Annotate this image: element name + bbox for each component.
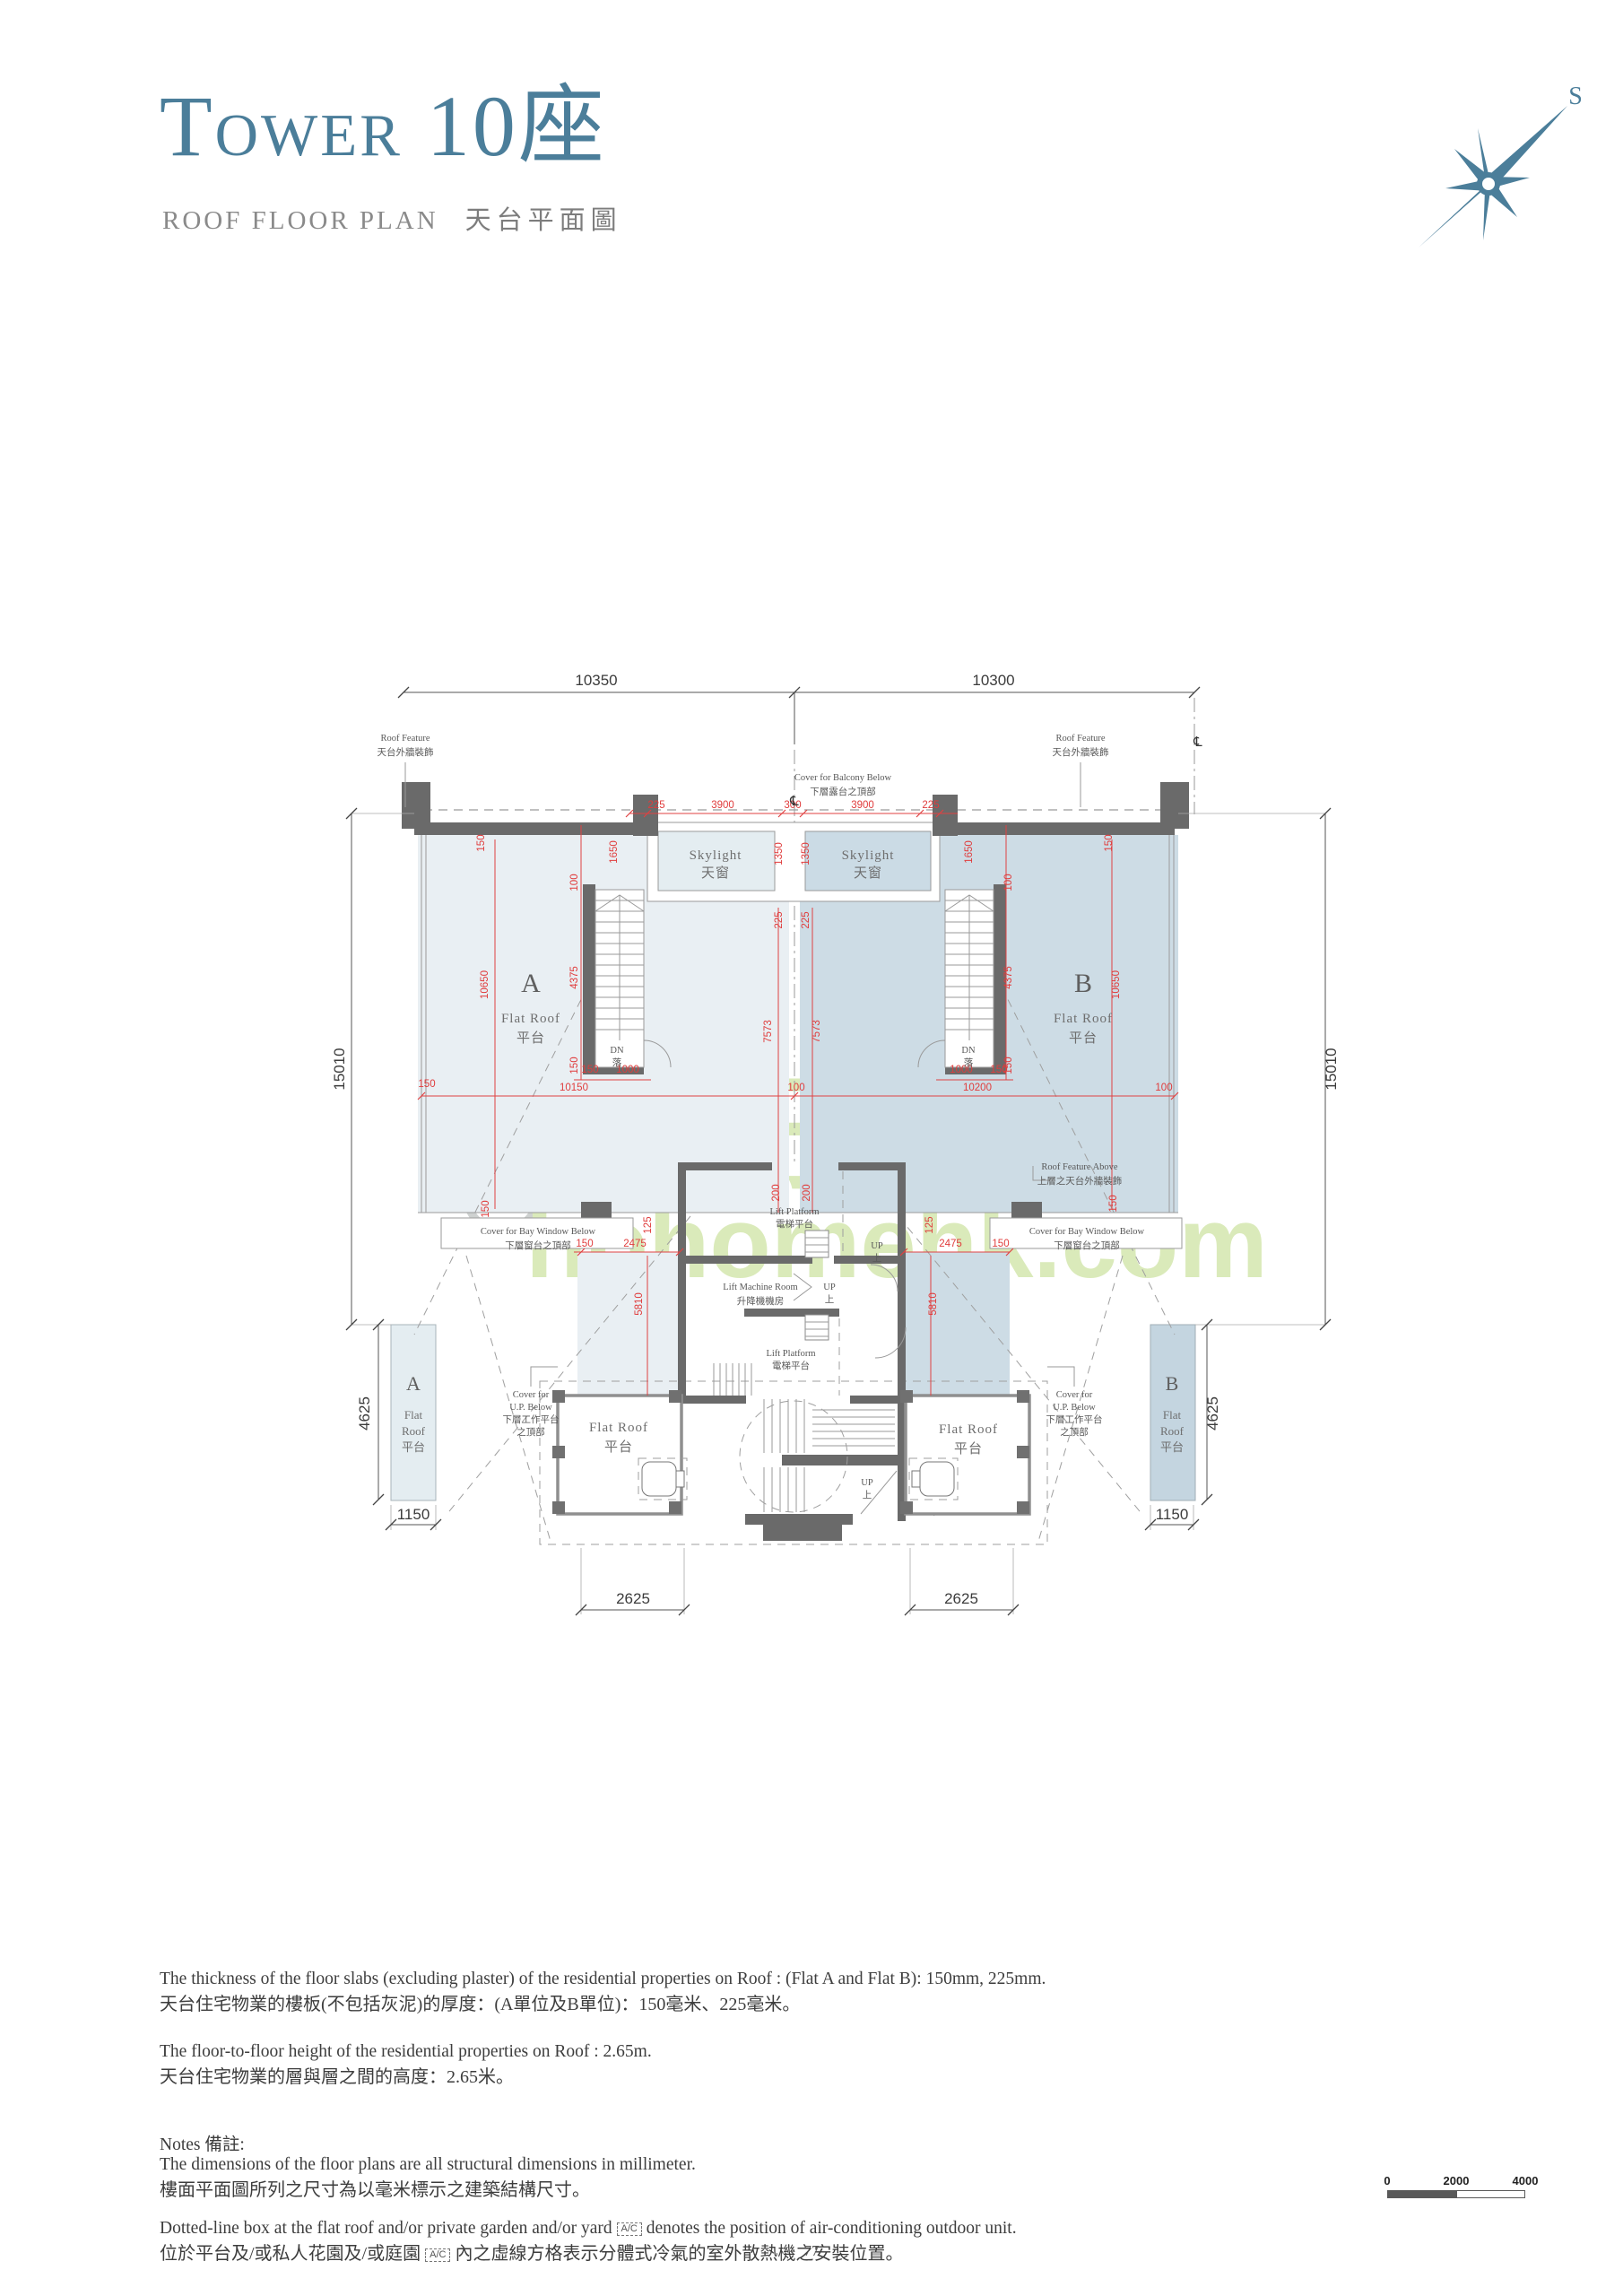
plan-label: 15010 — [331, 1048, 348, 1090]
plan-label: 之頂部 — [516, 1426, 545, 1438]
plan-label: 150 — [476, 834, 487, 851]
plan-label: Flat Roof — [939, 1422, 998, 1437]
plan-label: 天窗 — [701, 865, 730, 881]
plan-label: 150 — [576, 1239, 593, 1249]
plan-label: 100 — [787, 1083, 804, 1093]
plan-label: 2475 — [623, 1239, 647, 1249]
plan-label: Cover for Bay Window Below — [1029, 1227, 1145, 1237]
plan-label: 3900 — [711, 800, 734, 811]
plan-label: Roof Feature Above — [1041, 1162, 1117, 1172]
plan-label: 平台 — [1069, 1031, 1098, 1046]
plan-label: 2625 — [944, 1590, 978, 1607]
plan-label: 1350 — [774, 842, 785, 865]
plan-label: 4375 — [569, 966, 580, 989]
plan-label: 上層之天台外牆裝飾 — [1037, 1175, 1123, 1187]
plan-label: Flat Roof — [1054, 1012, 1113, 1026]
plan-label: 150 — [1108, 1195, 1119, 1212]
plan-label: 上 — [863, 1490, 872, 1500]
plan-label: 5810 — [928, 1292, 939, 1316]
plan-label: 下層工作平台 — [503, 1413, 560, 1425]
plan-label: 下層窗台之頂部 — [505, 1239, 571, 1251]
footer-notes: The thickness of the floor slabs (exclud… — [160, 1970, 1523, 2265]
plan-label: 10350 — [575, 672, 617, 689]
plan-label: Lift Platform — [766, 1349, 815, 1359]
plan-label: 落 — [612, 1057, 622, 1068]
plan-label: 1150 — [1156, 1506, 1189, 1523]
plan-label: Cover for — [1056, 1390, 1093, 1400]
plan-label: 100 — [1155, 1083, 1172, 1093]
plan-label: Roof — [1160, 1424, 1185, 1438]
plan-label: B — [1074, 969, 1092, 998]
plan-label: 平台 — [402, 1440, 425, 1454]
plan-label: 5810 — [634, 1292, 645, 1316]
plan-label: Flat — [1163, 1408, 1182, 1422]
plan-label: 2475 — [939, 1239, 962, 1249]
plan-label: Lift Platform — [769, 1207, 819, 1217]
plan-label: 4625 — [356, 1396, 373, 1431]
plan-label: ℄ — [1193, 734, 1202, 750]
plan-label: 1350 — [801, 842, 811, 865]
plan-label: 225 — [647, 800, 664, 811]
plan-label: Skylight — [690, 848, 742, 863]
plan-label: 天台外牆裝飾 — [378, 746, 434, 758]
note1-zh: 樓面平面圖所列之尺寸為以毫米標示之建築結構尺寸。 — [160, 2175, 1523, 2201]
plan-label: 電梯平台 — [776, 1218, 813, 1230]
plan-label: 200 — [771, 1184, 782, 1201]
plan-label: 下層露台之頂部 — [810, 786, 876, 797]
plan-label: 下層工作平台 — [1046, 1413, 1103, 1425]
plan-label: Skylight — [842, 848, 895, 863]
plan-label: 1650 — [964, 840, 975, 864]
ac-box-icon: A/C — [617, 2222, 642, 2236]
plan-label: UP — [861, 1478, 873, 1488]
plan-label: ℄ — [789, 793, 799, 809]
plan-label: B — [1166, 1372, 1179, 1395]
plan-label: UP — [871, 1241, 883, 1251]
plan-label: Cover for Balcony Below — [794, 773, 892, 783]
plan-label: Flat Roof — [501, 1012, 560, 1026]
plan-label: 150 — [418, 1079, 435, 1090]
plan-label: 下層窗台之頂部 — [1054, 1239, 1120, 1251]
plan-label: A — [406, 1372, 421, 1395]
plan-label: 10650 — [1111, 970, 1122, 999]
plan-label: 7573 — [811, 1020, 822, 1043]
plan-label: U.P. Below — [509, 1403, 552, 1413]
plan-label: Flat — [404, 1408, 423, 1422]
plan-label: Roof — [402, 1424, 426, 1438]
slab-thickness-zh: 天台住宅物業的樓板(不包括灰泥)的厚度：(A單位及B單位)：150毫米、225毫… — [160, 1989, 1523, 2015]
plan-label: UP — [823, 1283, 836, 1292]
plan-label: DN — [961, 1046, 976, 1056]
plan-label: DN — [610, 1046, 624, 1056]
note1-en: The dimensions of the floor plans are al… — [160, 2155, 1523, 2175]
floor-height-en: The floor-to-floor height of the residen… — [160, 2042, 1523, 2062]
plan-label: 225 — [801, 911, 811, 928]
plan-label: 上 — [872, 1253, 882, 1264]
plan-label: 10300 — [972, 672, 1014, 689]
plan-label: 225 — [774, 911, 785, 928]
plan-label: 平台 — [954, 1441, 983, 1457]
plan-label: 之頂部 — [1060, 1426, 1089, 1438]
plan-label: 平台 — [516, 1031, 545, 1046]
plan-label: 100 — [569, 874, 580, 891]
plan-label: Flat Roof — [589, 1421, 648, 1435]
plan-label: 上 — [825, 1294, 835, 1305]
plan-label: 15010 — [1323, 1048, 1340, 1090]
plan-label: 升降機機房 — [737, 1295, 785, 1307]
plan-label: 100 — [1003, 874, 1014, 891]
plan-label: 3900 — [851, 800, 874, 811]
plan-label: 125 — [643, 1216, 654, 1233]
plan-label: 天台外牆裝飾 — [1053, 746, 1109, 758]
plan-label: 4625 — [1204, 1396, 1221, 1431]
brochure-page: Tower 10座 ROOF FLOOR PLAN天台平面圖 好傢俬 hohom… — [0, 0, 1623, 2296]
plan-label: 150 — [569, 1057, 580, 1074]
page-number: 77 — [0, 2242, 1623, 2260]
plan-label: 150 — [581, 1065, 598, 1075]
floor-plan-svg: 好傢俬 hohomehk.com — [0, 0, 1623, 2296]
plan-label: 200 — [802, 1184, 812, 1201]
plan-label: 10650 — [480, 970, 490, 999]
plan-label: 150 — [990, 1065, 1007, 1075]
plan-label: 225 — [922, 800, 939, 811]
plan-label: 1650 — [609, 840, 620, 864]
compass-icon: S — [1419, 83, 1583, 248]
notes-title: Notes 備註: — [160, 2129, 1523, 2155]
plan-label: 150 — [992, 1239, 1009, 1249]
plan-label: Lift Machine Room — [723, 1283, 797, 1292]
plan-label: 150 — [481, 1200, 491, 1217]
plan-label: Cover for Bay Window Below — [481, 1227, 596, 1237]
plan-label: 平台 — [604, 1439, 633, 1455]
plan-label: U.P. Below — [1053, 1403, 1096, 1413]
plan-label: 平台 — [1160, 1440, 1184, 1454]
compass-south-label: S — [1568, 83, 1583, 110]
plan-label: 2625 — [616, 1590, 650, 1607]
plan-label: 10150 — [560, 1083, 588, 1093]
plan-label: Roof Feature — [380, 734, 430, 744]
slab-thickness-en: The thickness of the floor slabs (exclud… — [160, 1970, 1523, 1989]
plan-label: 150 — [1104, 834, 1115, 851]
plan-label: 落 — [964, 1057, 974, 1068]
plan-label: A — [521, 969, 541, 998]
plan-label: 7573 — [763, 1020, 774, 1043]
plan-label: Cover for — [513, 1390, 550, 1400]
plan-label: 電梯平台 — [772, 1360, 810, 1371]
plan-label: 125 — [924, 1216, 935, 1233]
plan-label: 10200 — [963, 1083, 992, 1093]
plan-label: 天窗 — [854, 865, 882, 881]
note2-en: Dotted-line box at the flat roof and/or … — [160, 2219, 1523, 2239]
plan-label: 4375 — [1003, 966, 1014, 989]
plan-label: Roof Feature — [1055, 734, 1105, 744]
floor-height-zh: 天台住宅物業的層與層之間的高度：2.65米。 — [160, 2062, 1523, 2088]
plan-label: 1150 — [397, 1506, 430, 1523]
